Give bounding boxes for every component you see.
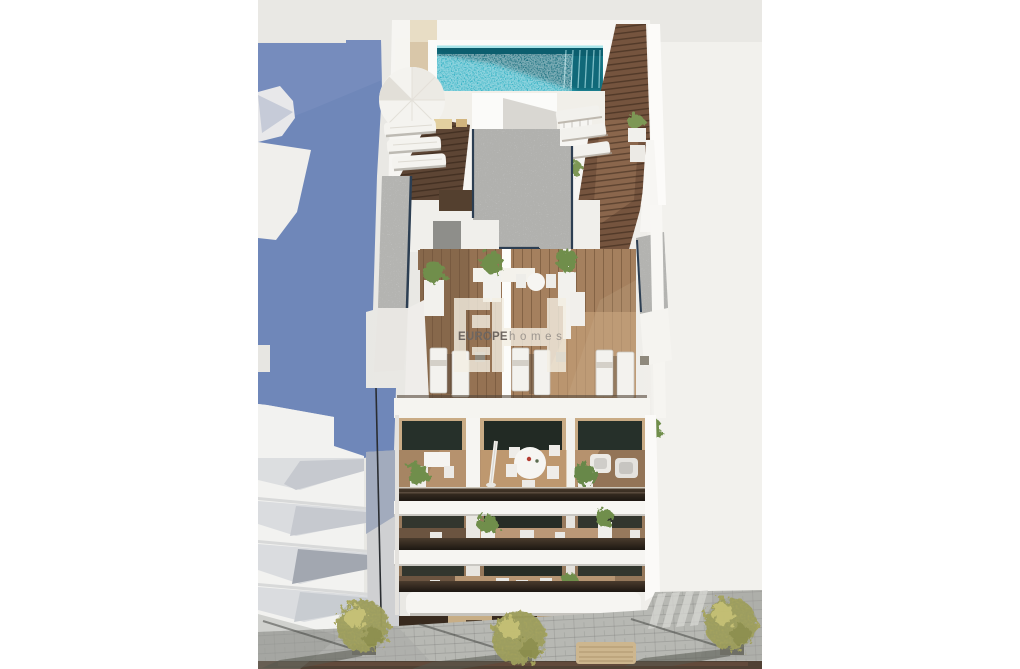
svg-text:EUROPE: EUROPE [458,331,508,343]
svg-text:homes: homes [509,331,567,343]
